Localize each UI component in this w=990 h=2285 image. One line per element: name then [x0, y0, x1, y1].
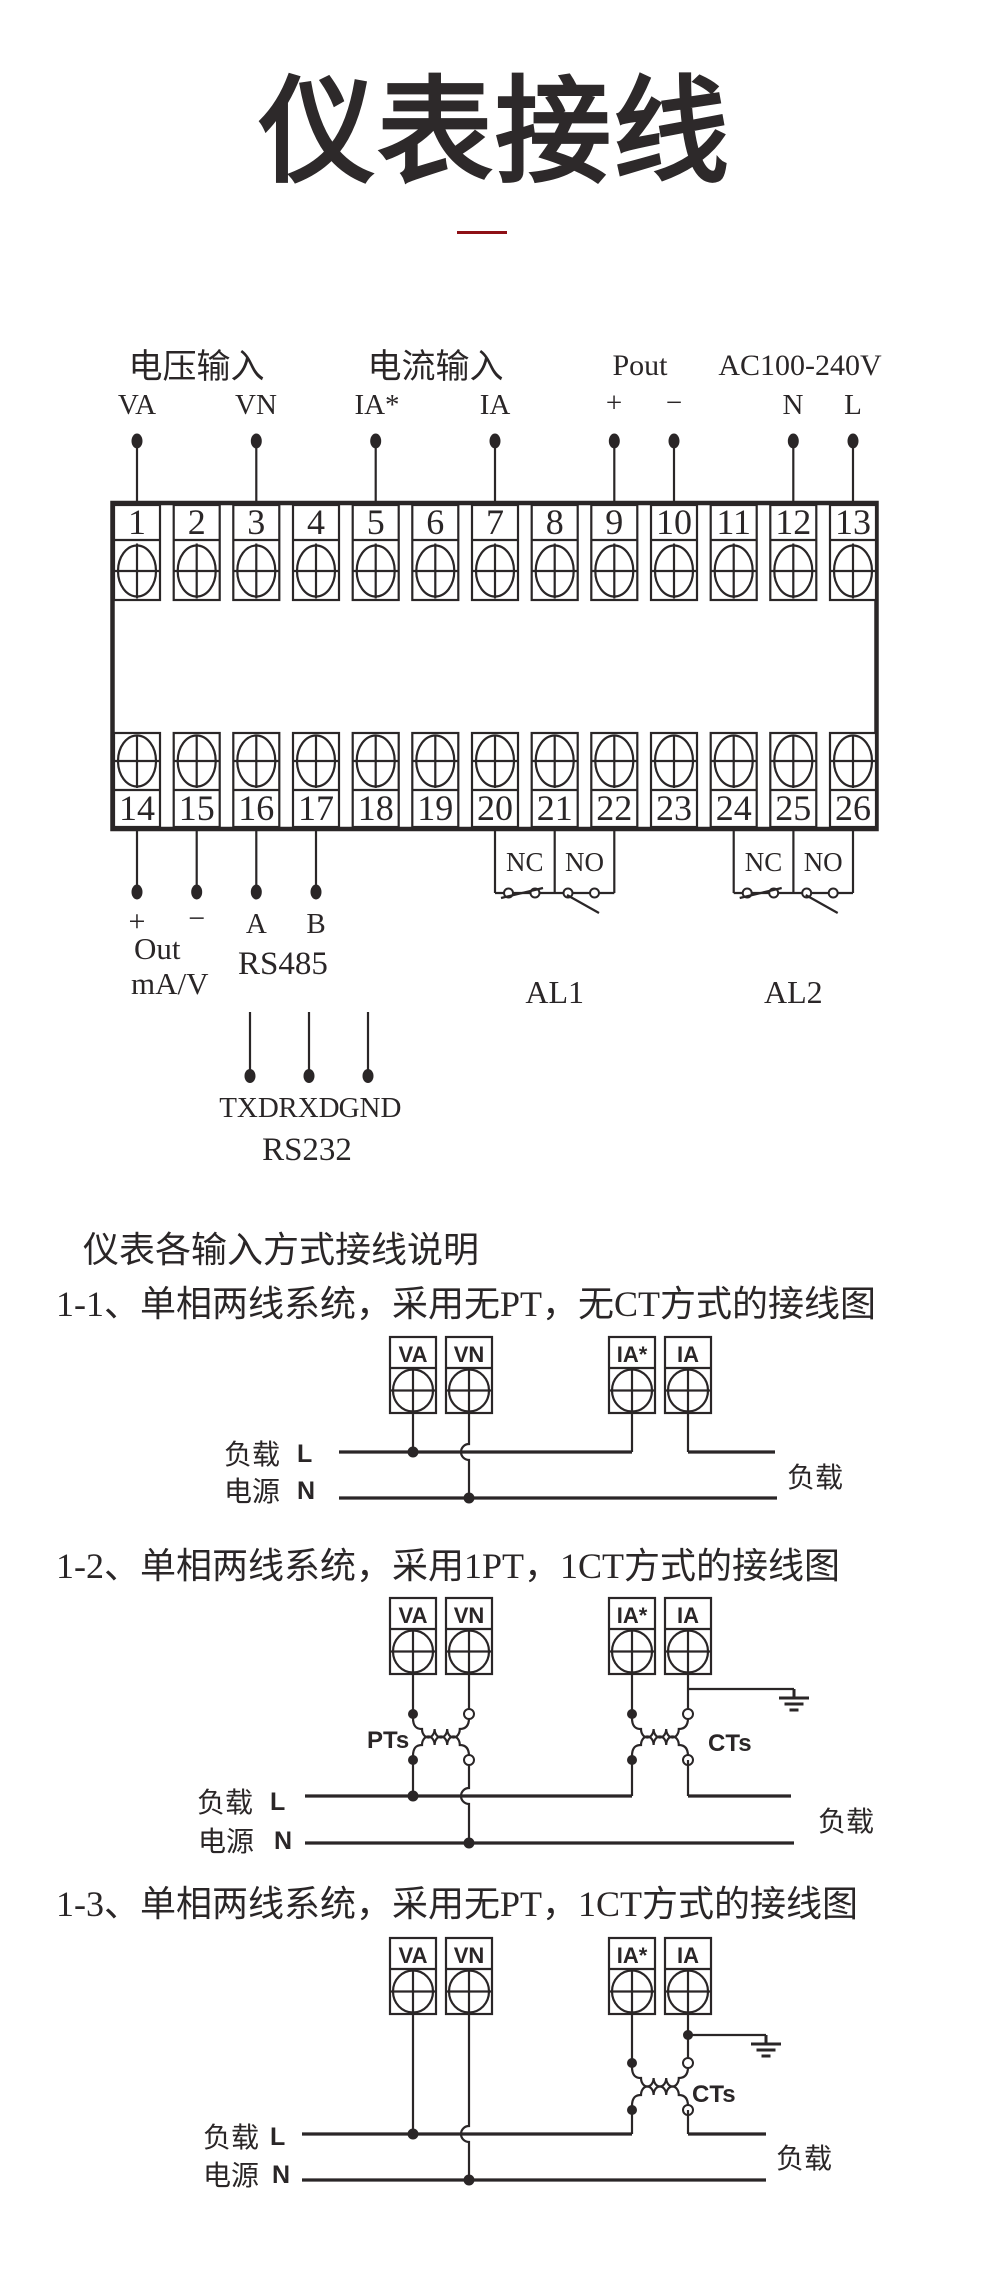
- d1-load-right-label: 负载: [787, 1462, 843, 1494]
- analog-output-and-rs485: + − A B Out mA/V RS485: [129, 831, 328, 1001]
- relay1-no-label: NO: [565, 847, 604, 877]
- terminal-number: 23: [656, 788, 692, 828]
- sub-terminal-ia: IA: [677, 1603, 699, 1628]
- pin-label-l: L: [844, 389, 862, 421]
- sub-terminal-va: VA: [399, 1342, 428, 1367]
- rs485-b-label: B: [306, 908, 325, 940]
- sub-terminal-va: VA: [399, 1603, 428, 1628]
- terminal-number: 6: [426, 502, 444, 542]
- sub-terminal-vn: VN: [454, 1943, 485, 1968]
- d3-load-left-label: 负载: [203, 2122, 259, 2154]
- out-label: Out: [134, 931, 181, 966]
- ct-transformer-icon: [627, 2058, 693, 2115]
- sub-diagram-1-1: VA VN IA* IA 负载 L 电源 N 负载: [224, 1337, 843, 1508]
- pin-label-va: VA: [118, 389, 156, 421]
- terminal-number: 12: [775, 502, 811, 542]
- terminal-number: 14: [119, 788, 155, 828]
- main-input-wires: [132, 434, 859, 504]
- d3-line-n-label: N: [272, 2161, 290, 2189]
- out-minus-label: −: [188, 902, 205, 935]
- wiring-manual-page: 仪表接线 仪表各输入方式接线说明 1-1、单相两线系统，采用无PT，无CT方式的…: [0, 0, 990, 2285]
- terminal-number: 1: [128, 502, 146, 542]
- d1-line-n-label: N: [297, 1477, 315, 1505]
- group-label-voltage-input: 电压输入: [129, 348, 265, 386]
- sub-terminal-ia-star: IA*: [617, 1342, 648, 1367]
- alarm-relay-1: NC NO AL1: [495, 831, 614, 1010]
- out-unit-label: mA/V: [131, 966, 209, 1001]
- pin-label-minus: −: [666, 387, 682, 419]
- d3-load-right-label: 负载: [776, 2143, 832, 2175]
- d2-load-left-label: 负载: [197, 1787, 253, 1819]
- pin-label-vn: VN: [235, 389, 277, 421]
- pin-label-ia-star: IA*: [354, 389, 399, 421]
- terminal-number: 11: [716, 502, 751, 542]
- d3-line-l-label: L: [270, 2123, 285, 2151]
- terminal-number: 19: [417, 788, 453, 828]
- sub-terminal-va: VA: [399, 1943, 428, 1968]
- terminal-number: 8: [546, 502, 564, 542]
- terminal-number: 18: [358, 788, 394, 828]
- rs232-port: TXD RXD GND RS232: [219, 1012, 401, 1168]
- terminal-number: 25: [775, 788, 811, 828]
- terminal-number: 7: [486, 502, 504, 542]
- group-label-current-input: 电流输入: [368, 348, 504, 386]
- sub-diagram-1-3: VA VN IA* IA CTs 负载 L 电源 N: [203, 1938, 832, 2192]
- terminal-number: 26: [835, 788, 871, 828]
- d2-load-right-label: 负载: [818, 1806, 874, 1838]
- terminal-number: 2: [188, 502, 206, 542]
- terminal-number: 10: [656, 502, 692, 542]
- terminal-number: 22: [596, 788, 632, 828]
- terminal-number: 4: [307, 502, 325, 542]
- relay1-nc-label: NC: [506, 847, 544, 877]
- sub-terminal-ia: IA: [677, 1943, 699, 1968]
- d2-line-l-label: L: [270, 1788, 285, 1816]
- ground-icon: [751, 2035, 781, 2056]
- rs485-label: RS485: [238, 946, 328, 982]
- alarm-relay-2: NC NO AL2: [734, 831, 853, 1010]
- terminal-number: 13: [835, 502, 871, 542]
- main-input-labels: 电压输入 电流输入 Pout AC100-240V VA VN IA* IA +…: [118, 348, 882, 421]
- ground-icon: [779, 1689, 809, 1710]
- terminal-block: 1 2 3 4 5 6 7 8 9 10 11 12 13 14 15 16 1…: [113, 502, 877, 829]
- group-label-ac-supply: AC100-240V: [718, 349, 882, 382]
- terminal-number: 24: [716, 788, 752, 828]
- rs232-txd-label: TXD: [219, 1092, 279, 1124]
- relay2-label: AL2: [764, 974, 823, 1010]
- d2-line-n-label: N: [274, 1827, 292, 1855]
- pin-label-ia: IA: [480, 389, 511, 421]
- sub-terminal-ia: IA: [677, 1342, 699, 1367]
- terminal-number: 17: [298, 788, 334, 828]
- ct-label: CTs: [708, 1730, 752, 1757]
- d2-source-left-label: 电源: [198, 1826, 254, 1858]
- pin-label-n: N: [783, 389, 804, 421]
- d1-line-l-label: L: [297, 1440, 312, 1468]
- rs232-label: RS232: [262, 1132, 352, 1168]
- pin-label-plus: +: [606, 387, 622, 419]
- terminal-number: 21: [537, 788, 573, 828]
- ct-transformer-icon: [627, 1709, 693, 1765]
- rs485-a-label: A: [246, 908, 267, 940]
- sub-terminal-ia-star: IA*: [617, 1603, 648, 1628]
- d1-source-left-label: 电源: [224, 1476, 280, 1508]
- sub-terminal-ia-star: IA*: [617, 1943, 648, 1968]
- sub-diagram-1-2: VA VN IA* IA PTs CTs: [197, 1598, 874, 1858]
- d1-load-left-label: 负载: [224, 1439, 280, 1471]
- terminal-number: 5: [367, 502, 385, 542]
- relay1-label: AL1: [525, 974, 584, 1010]
- relay2-nc-label: NC: [745, 847, 783, 877]
- sub-terminal-vn: VN: [454, 1342, 485, 1367]
- pt-transformer-icon: [408, 1709, 474, 1765]
- relay2-no-label: NO: [804, 847, 843, 877]
- terminal-number: 3: [247, 502, 265, 542]
- ct-label: CTs: [692, 2081, 736, 2108]
- rs232-rxd-label: RXD: [278, 1092, 339, 1124]
- terminal-number: 16: [238, 788, 274, 828]
- terminal-number: 20: [477, 788, 513, 828]
- wiring-diagram-canvas: 电压输入 电流输入 Pout AC100-240V VA VN IA* IA +…: [0, 0, 990, 2285]
- rs232-gnd-label: GND: [339, 1092, 402, 1124]
- d3-source-left-label: 电源: [203, 2160, 259, 2192]
- terminal-number: 15: [179, 788, 215, 828]
- terminal-number: 9: [605, 502, 623, 542]
- group-label-pout: Pout: [612, 349, 668, 382]
- pt-label: PTs: [367, 1727, 409, 1754]
- sub-terminal-vn: VN: [454, 1603, 485, 1628]
